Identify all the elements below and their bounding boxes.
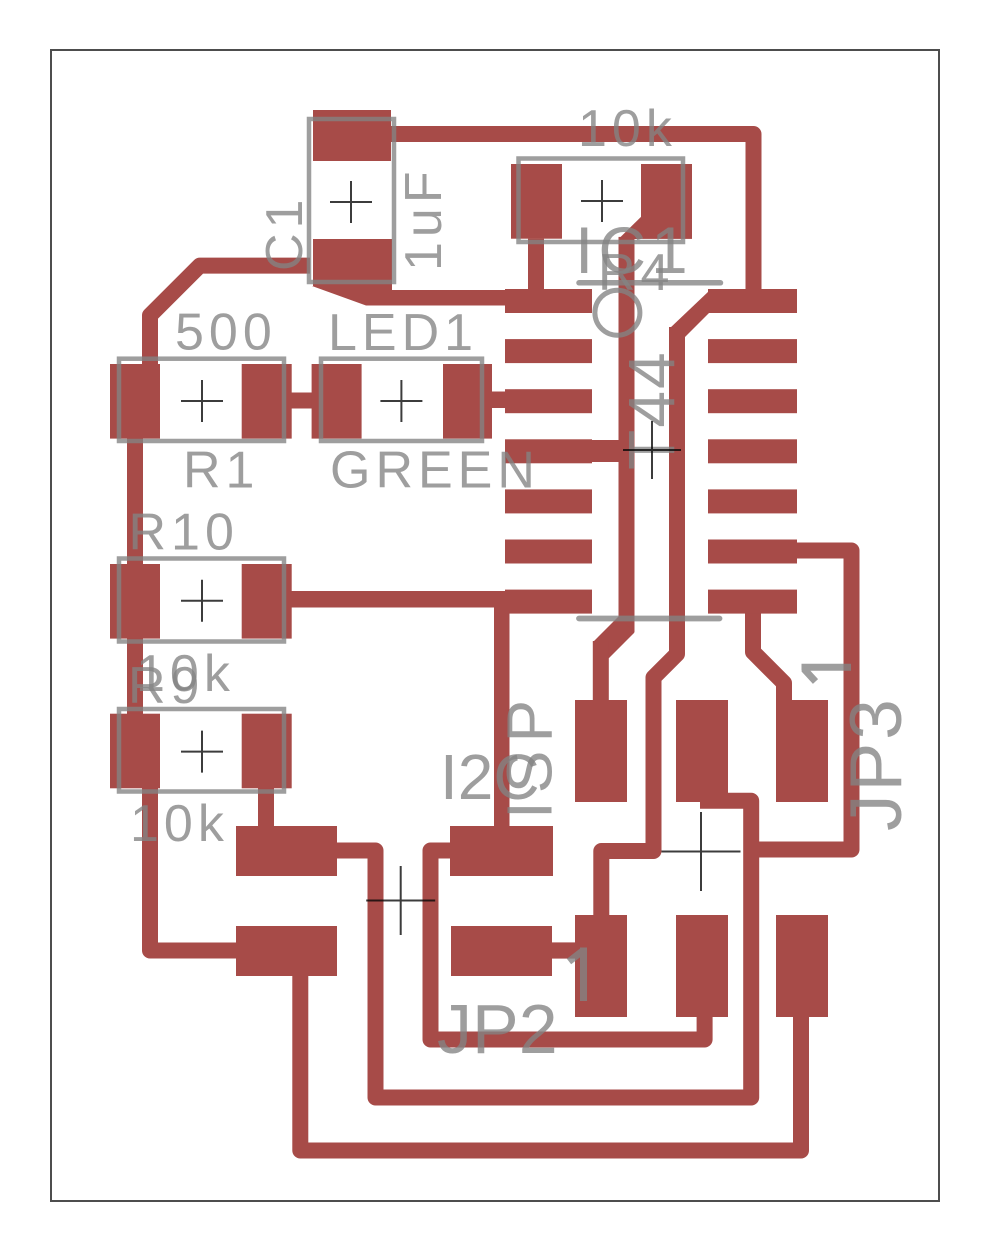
svg-text:C1: C1 xyxy=(256,195,314,271)
svg-text:R9: R9 xyxy=(128,657,204,715)
svg-text:10k: 10k xyxy=(578,100,677,158)
svg-text:R10: R10 xyxy=(129,504,239,562)
svg-text:JP2: JP2 xyxy=(437,990,558,1068)
svg-text:R1: R1 xyxy=(183,442,259,500)
svg-text:ISP: ISP xyxy=(494,692,566,819)
svg-text:1uF: 1uF xyxy=(395,166,453,271)
svg-text:GREEN: GREEN xyxy=(330,442,540,500)
svg-text:R4: R4 xyxy=(598,244,674,302)
svg-text:500: 500 xyxy=(175,304,277,362)
svg-text:LED1: LED1 xyxy=(328,304,478,362)
svg-text:10k: 10k xyxy=(130,795,229,853)
svg-text:JP3: JP3 xyxy=(836,696,917,831)
